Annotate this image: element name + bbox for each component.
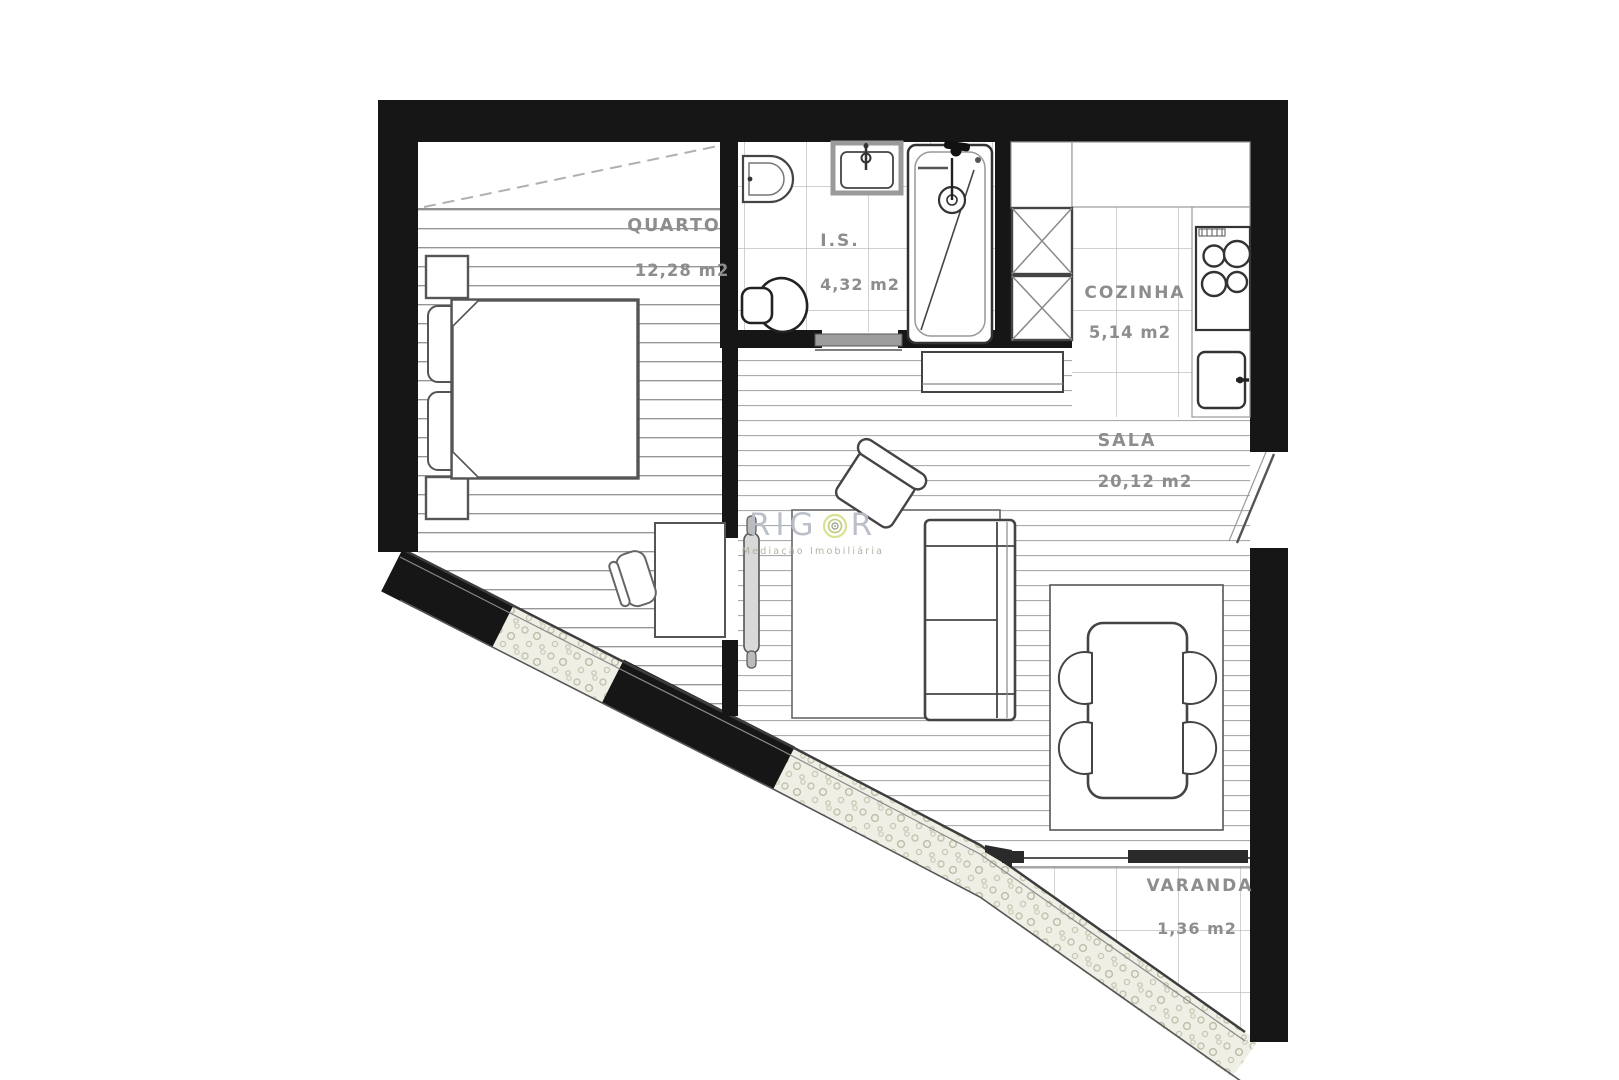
room-label-varanda: VARANDA: [1147, 876, 1254, 896]
nightstand-top: [426, 256, 468, 298]
wall-bathroom-kitchen: [995, 142, 1011, 344]
room-label-sala: SALA: [1098, 431, 1157, 451]
room-area-cozinha: 5,14 m2: [1089, 323, 1171, 342]
room-label-cozinha: COZINHA: [1084, 283, 1185, 303]
double-bed: [452, 300, 638, 478]
kitchen-floor: [1072, 207, 1192, 417]
brand-watermark: RIG R Mediação Imobiliária: [733, 510, 893, 557]
dining-table: [1088, 623, 1187, 798]
room-area-quarto: 12,28 m2: [635, 261, 730, 280]
kitchen-counter-left: [1011, 142, 1072, 208]
brand-wordmark: RIG R: [733, 510, 893, 541]
floor-plan-page: QUARTO 12,28 m2 I.S. 4,32 m2 COZINHA 5,1…: [0, 0, 1619, 1080]
kitchen-tall-cabinets: [1012, 208, 1072, 340]
kitchen-counter-top: [1072, 142, 1250, 207]
sofa: [925, 520, 1015, 720]
wall-quarto-bathroom: [720, 142, 738, 348]
brand-text-left: RIG: [749, 510, 819, 541]
brand-tagline: Mediação Imobiliária: [733, 546, 893, 557]
room-label-is: I.S.: [820, 231, 860, 251]
wall-top: [378, 100, 1288, 142]
bathroom-sliding-door: [815, 334, 902, 350]
target-rings-icon: [822, 513, 848, 539]
nightstand-bottom: [426, 477, 468, 519]
brand-text-right: R: [851, 510, 878, 541]
washbasin: [833, 143, 901, 193]
stove: [1196, 227, 1250, 330]
desk: [655, 523, 725, 637]
wall-right-upper: [1250, 142, 1288, 452]
wall-left: [378, 100, 418, 552]
room-area-sala: 20,12 m2: [1098, 472, 1193, 491]
room-label-quarto: QUARTO: [627, 216, 721, 236]
room-area-varanda: 1,36 m2: [1157, 919, 1237, 938]
bathtub-shower: [908, 140, 992, 343]
wall-right-lower: [1250, 548, 1288, 1042]
bidet: [743, 156, 793, 202]
sideboard: [922, 352, 1063, 392]
room-area-is: 4,32 m2: [820, 275, 900, 294]
kitchen-sink: [1198, 352, 1249, 408]
wall-quarto-sala-lower: [722, 640, 738, 716]
